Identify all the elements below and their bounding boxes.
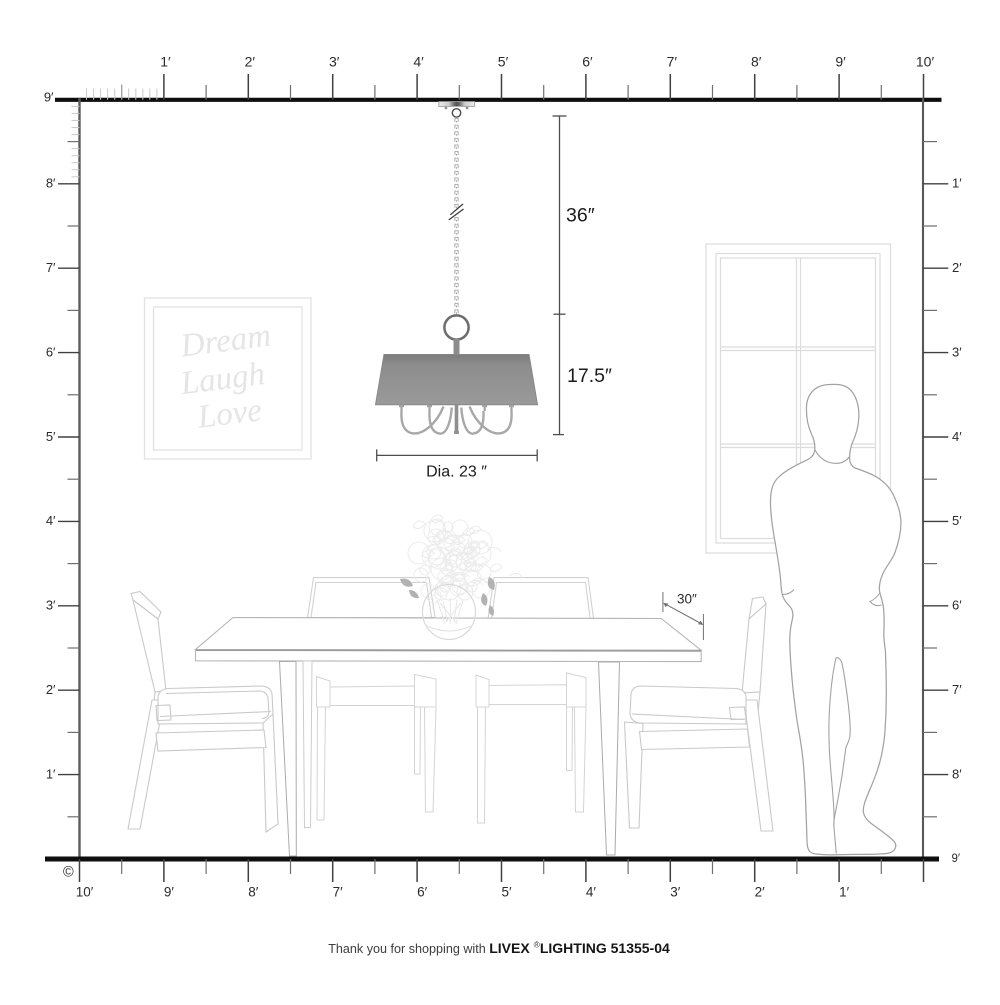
svg-text:4′: 4′ <box>46 513 56 528</box>
svg-text:3′: 3′ <box>670 885 681 900</box>
svg-text:1′: 1′ <box>160 54 171 70</box>
svg-text:Thank you for shopping with LI: Thank you for shopping with LIVEX ®LIGHT… <box>328 940 670 957</box>
svg-text:7′: 7′ <box>952 682 962 697</box>
svg-text:9′: 9′ <box>164 885 175 900</box>
svg-text:8′: 8′ <box>248 885 259 900</box>
svg-text:4′: 4′ <box>586 885 597 900</box>
svg-text:2′: 2′ <box>245 54 256 70</box>
svg-text:10′: 10′ <box>916 54 935 70</box>
svg-text:36″: 36″ <box>566 205 595 227</box>
svg-text:2′: 2′ <box>755 885 766 900</box>
svg-text:2′: 2′ <box>952 260 962 275</box>
svg-text:9′: 9′ <box>835 54 846 70</box>
svg-text:5′: 5′ <box>498 54 509 70</box>
svg-text:7′: 7′ <box>667 54 678 70</box>
svg-text:8′: 8′ <box>46 176 56 191</box>
svg-text:7′: 7′ <box>333 885 344 900</box>
svg-text:1′: 1′ <box>839 885 850 900</box>
svg-text:©: © <box>63 865 74 881</box>
svg-text:6′: 6′ <box>952 598 962 613</box>
svg-text:3′: 3′ <box>46 598 56 613</box>
svg-text:6′: 6′ <box>417 885 428 900</box>
svg-text:Dia. 23 ″: Dia. 23 ″ <box>426 464 487 481</box>
svg-text:5′: 5′ <box>46 429 56 444</box>
svg-text:9′: 9′ <box>952 853 961 865</box>
svg-text:17.5″: 17.5″ <box>567 365 612 387</box>
svg-text:1′: 1′ <box>952 176 962 191</box>
svg-text:6′: 6′ <box>46 344 56 359</box>
svg-text:5′: 5′ <box>952 513 962 528</box>
svg-text:9′: 9′ <box>44 90 54 105</box>
svg-text:7′: 7′ <box>46 260 56 275</box>
svg-text:3′: 3′ <box>329 54 340 70</box>
svg-text:4′: 4′ <box>413 54 424 70</box>
svg-text:5′: 5′ <box>501 885 512 900</box>
svg-text:6′: 6′ <box>582 54 593 70</box>
svg-text:10′: 10′ <box>76 885 94 900</box>
svg-text:8′: 8′ <box>751 54 762 70</box>
svg-text:30″: 30″ <box>677 592 697 607</box>
svg-text:4′: 4′ <box>952 429 962 444</box>
svg-text:8′: 8′ <box>952 766 962 781</box>
svg-text:2′: 2′ <box>46 682 56 697</box>
svg-text:1′: 1′ <box>46 766 56 781</box>
svg-text:3′: 3′ <box>952 344 962 359</box>
